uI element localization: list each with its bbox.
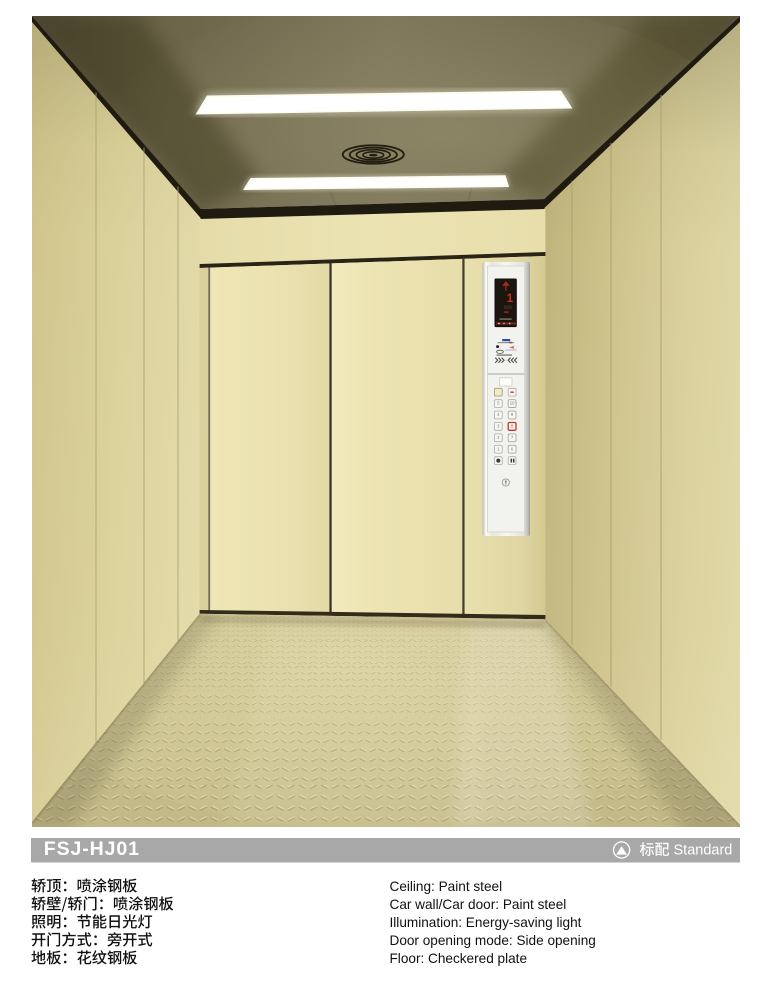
svg-text:FSJ-HJ01: FSJ-HJ01 bbox=[44, 838, 140, 860]
svg-text:Floor: Checkered plate: Floor: Checkered plate bbox=[390, 951, 528, 966]
svg-text:1: 1 bbox=[507, 293, 514, 305]
svg-text:Door opening mode: Side openin: Door opening mode: Side opening bbox=[390, 933, 596, 948]
svg-text:Illumination: Energy-saving li: Illumination: Energy-saving light bbox=[390, 915, 582, 930]
svg-text:Standard: Standard bbox=[674, 842, 733, 858]
svg-text:Car wall/Car door: Paint steel: Car wall/Car door: Paint steel bbox=[390, 897, 567, 912]
svg-text:10: 10 bbox=[510, 401, 515, 406]
svg-text:Ceiling: Paint steel: Ceiling: Paint steel bbox=[390, 879, 503, 894]
